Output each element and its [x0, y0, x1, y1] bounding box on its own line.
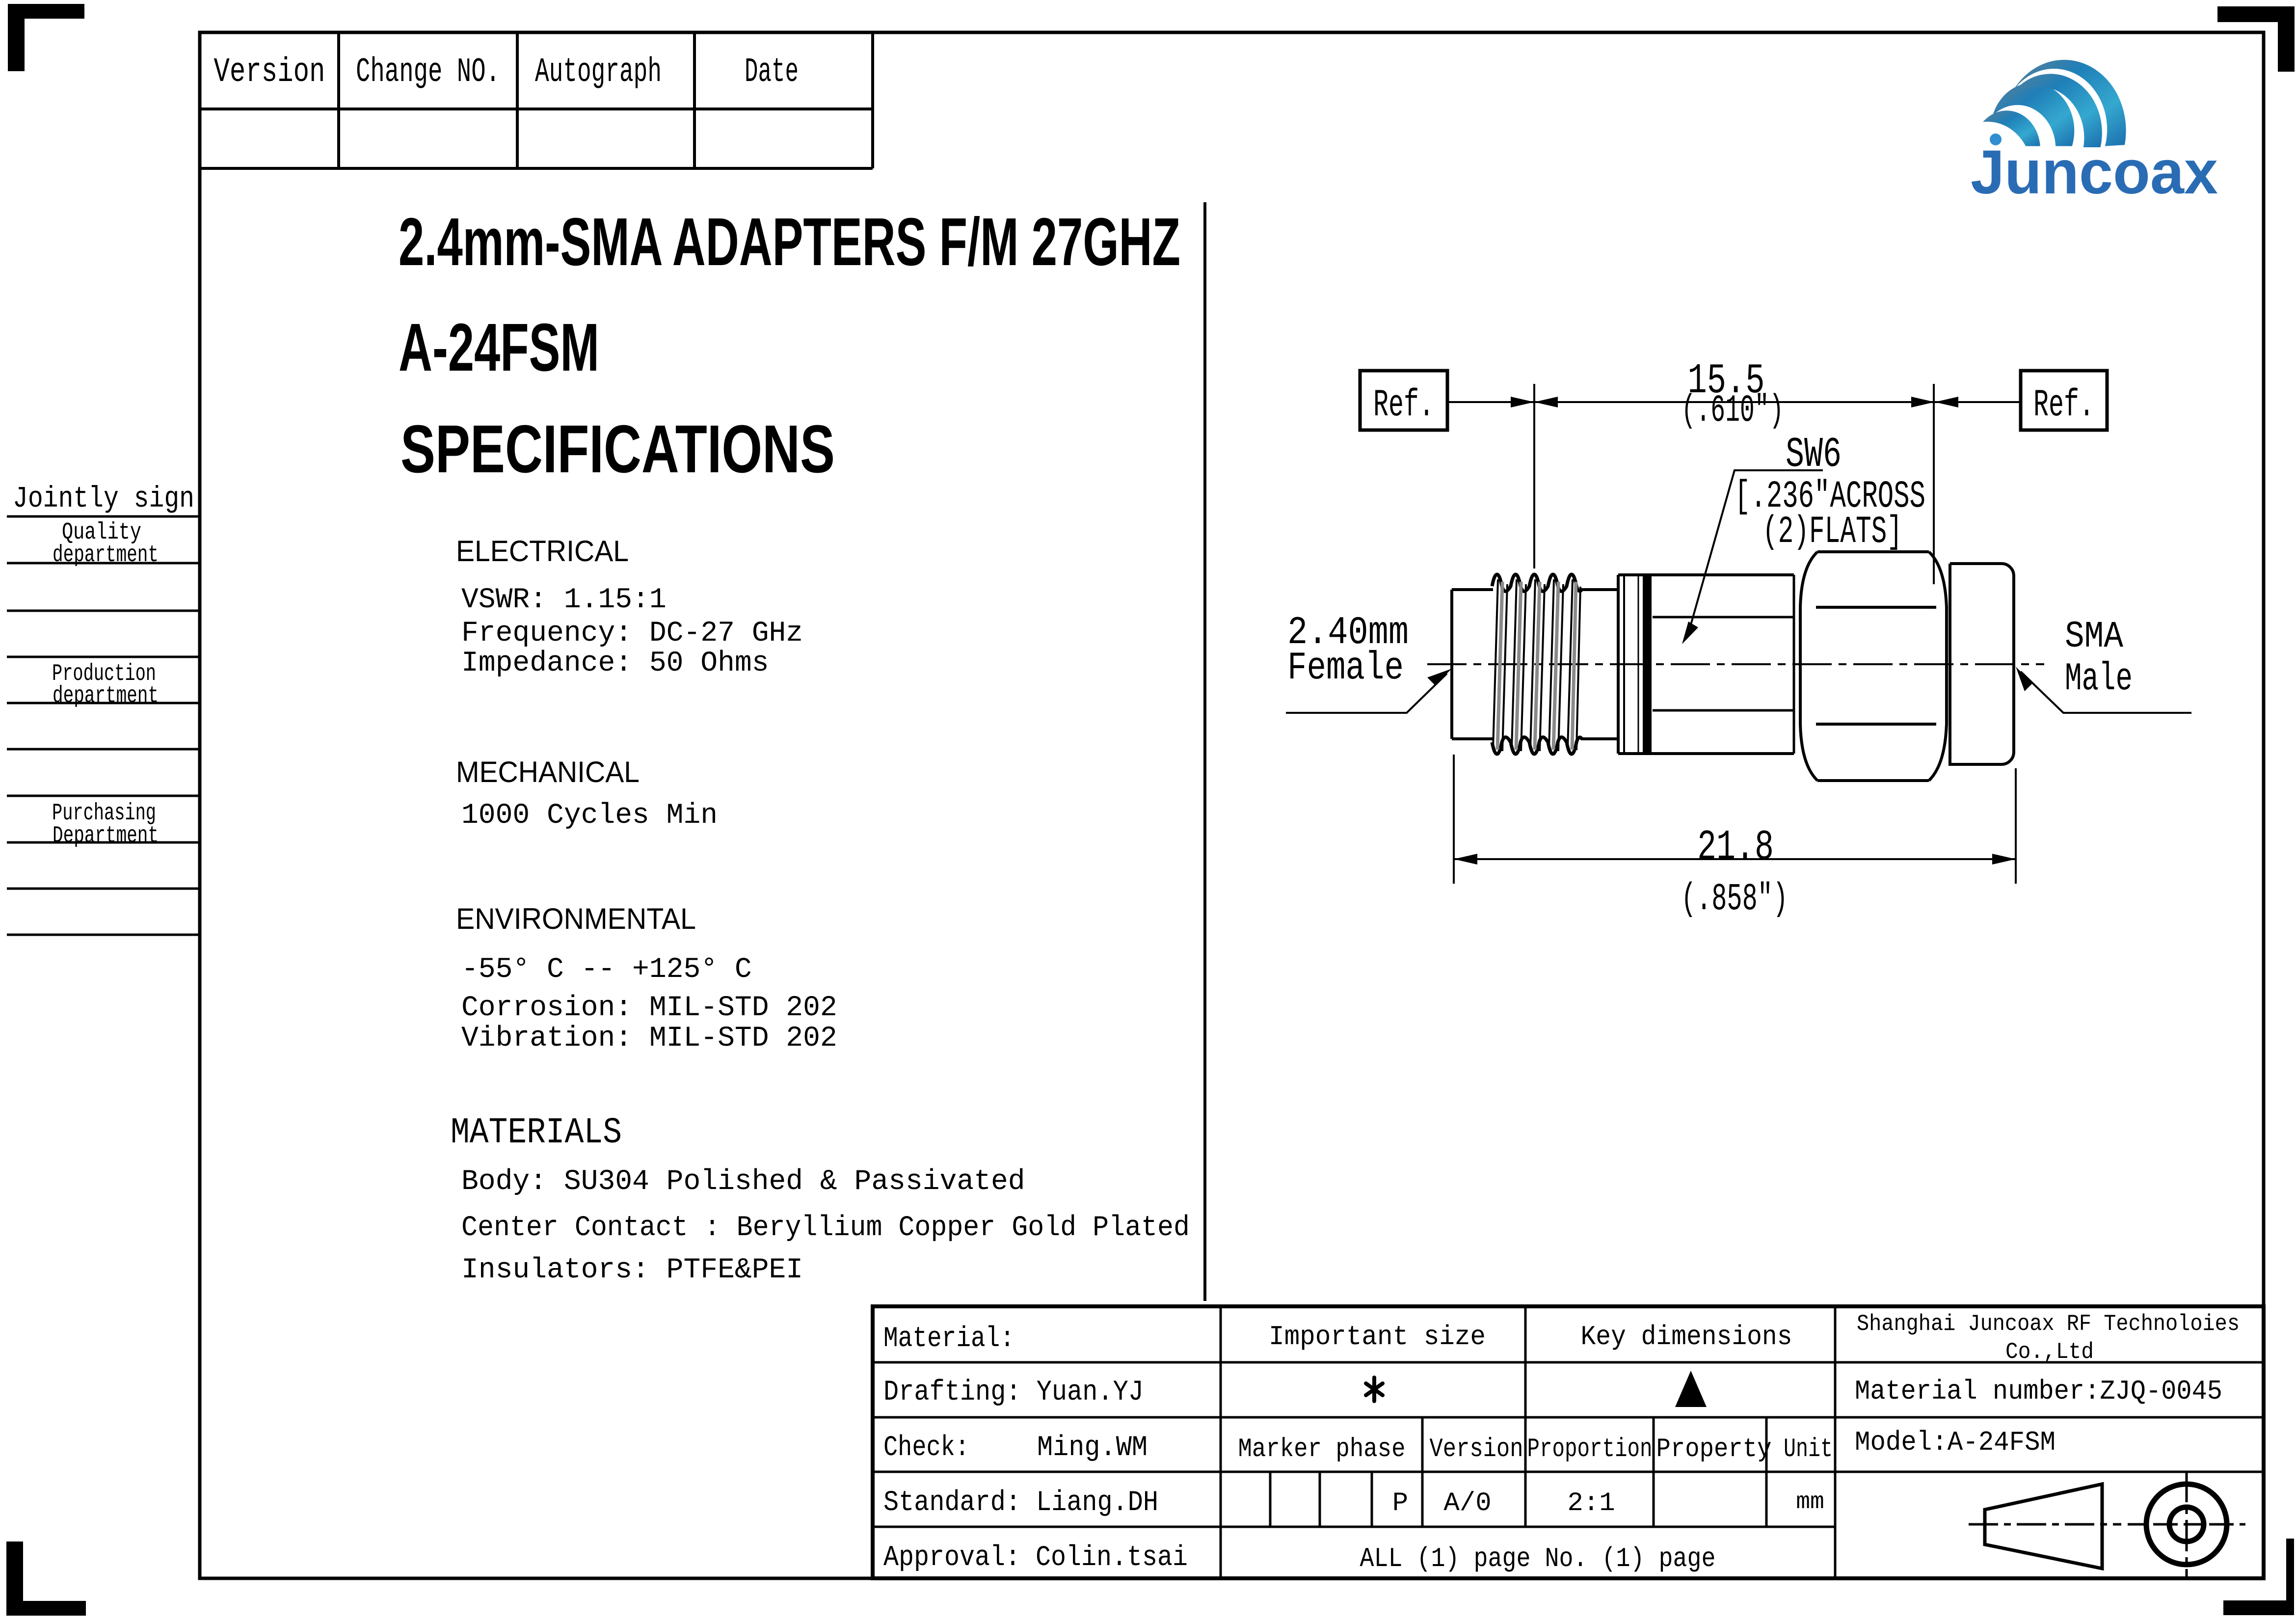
svg-text:Property: Property — [1656, 1434, 1772, 1464]
svg-text:1000 Cycles Min: 1000 Cycles Min — [461, 800, 718, 832]
svg-text:MECHANICAL: MECHANICAL — [456, 756, 640, 788]
svg-text:Version: Version — [214, 53, 325, 92]
svg-text:VSWR: 1.15:1: VSWR: 1.15:1 — [461, 584, 667, 616]
svg-text:ENVIRONMENTAL: ENVIRONMENTAL — [456, 902, 696, 935]
svg-text:ELECTRICAL: ELECTRICAL — [456, 535, 629, 568]
svg-text:Autograph: Autograph — [535, 53, 662, 92]
svg-text:(.858"): (.858") — [1681, 878, 1788, 921]
svg-text:mm: mm — [1796, 1489, 1824, 1515]
svg-text:SW6: SW6 — [1786, 431, 1842, 479]
svg-text:A-24FSM: A-24FSM — [399, 310, 599, 385]
svg-text:Unit: Unit — [1784, 1434, 1833, 1464]
svg-text:Juncoax: Juncoax — [1971, 137, 2218, 207]
svg-text:Jointly sign: Jointly sign — [13, 483, 194, 516]
svg-text:Impedance: 50 Ohms: Impedance: 50 Ohms — [461, 648, 769, 679]
svg-text:Standard: Liang.DH: Standard: Liang.DH — [883, 1487, 1158, 1519]
svg-text:Male: Male — [2065, 657, 2133, 702]
svg-text:Check:: Check: — [883, 1432, 969, 1464]
svg-text:Department: Department — [53, 823, 159, 849]
svg-text:Version: Version — [1430, 1434, 1523, 1464]
svg-text:Important size: Important size — [1269, 1321, 1486, 1352]
svg-text:Marker phase: Marker phase — [1238, 1434, 1406, 1464]
svg-text:A/0: A/0 — [1443, 1488, 1491, 1518]
svg-text:Proportion: Proportion — [1527, 1434, 1653, 1464]
svg-text:Corrosion: MIL-STD 202: Corrosion: MIL-STD 202 — [461, 992, 837, 1024]
svg-text:Center Contact : Beryllium Cop: Center Contact : Beryllium Copper Gold P… — [461, 1212, 1190, 1244]
svg-text:21.8: 21.8 — [1697, 823, 1774, 871]
svg-text:Approval: Colin.tsai: Approval: Colin.tsai — [883, 1542, 1188, 1574]
svg-text:(2)FLATS]: (2)FLATS] — [1762, 511, 1902, 554]
svg-text:Date: Date — [745, 53, 799, 92]
svg-text:Insulators: PTFE&PEI: Insulators: PTFE&PEI — [461, 1254, 803, 1286]
svg-text:Model:A-24FSM: Model:A-24FSM — [1855, 1427, 2056, 1458]
svg-text:Ming.WM: Ming.WM — [1037, 1432, 1148, 1464]
svg-text:2.4mm-SMA ADAPTERS F/M 27GHZ: 2.4mm-SMA ADAPTERS F/M 27GHZ — [399, 204, 1180, 280]
svg-text:P: P — [1392, 1488, 1408, 1518]
svg-text:MATERIALS: MATERIALS — [451, 1112, 622, 1154]
svg-text:Co.,Ltd: Co.,Ltd — [2005, 1339, 2094, 1365]
svg-text:Ref.: Ref. — [2033, 384, 2094, 427]
svg-text:Key dimensions: Key dimensions — [1581, 1321, 1792, 1352]
svg-text:-55° C -- +125° C: -55° C -- +125° C — [461, 954, 752, 986]
svg-text:Ref.: Ref. — [1373, 384, 1434, 427]
svg-text:ALL (1) page No. (1) page: ALL (1) page No. (1) page — [1360, 1543, 1716, 1574]
svg-text:Change NO.: Change NO. — [356, 53, 500, 92]
svg-text:Body: SU304 Polished & Passiva: Body: SU304 Polished & Passivated — [461, 1166, 1025, 1198]
svg-text:2:1: 2:1 — [1567, 1488, 1615, 1518]
svg-text:(.610"): (.610") — [1682, 389, 1784, 433]
svg-text:Material number:ZJQ-0045: Material number:ZJQ-0045 — [1855, 1376, 2222, 1407]
svg-text:SPECIFICATIONS: SPECIFICATIONS — [400, 411, 835, 487]
svg-text:Frequency: DC-27 GHz: Frequency: DC-27 GHz — [461, 618, 803, 649]
svg-text:Vibration: MIL-STD 202: Vibration: MIL-STD 202 — [461, 1023, 837, 1055]
svg-text:SMA: SMA — [2065, 616, 2123, 658]
svg-text:Female: Female — [1287, 646, 1404, 691]
svg-text:Material:: Material: — [883, 1323, 1015, 1355]
svg-text:Shanghai Juncoax RF Technoloie: Shanghai Juncoax RF Technoloies — [1857, 1311, 2240, 1337]
svg-text:department: department — [53, 542, 159, 568]
svg-text:Drafting: Yuan.YJ: Drafting: Yuan.YJ — [883, 1377, 1144, 1408]
svg-text:department: department — [53, 683, 159, 709]
